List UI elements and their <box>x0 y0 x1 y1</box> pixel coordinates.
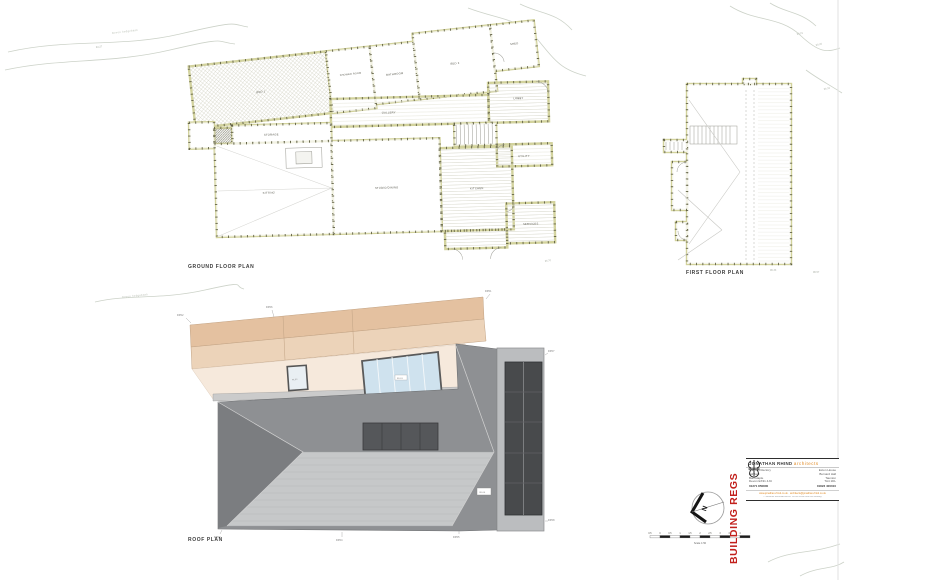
spot-level: 94.27 <box>96 45 103 49</box>
edge-label-dp06: DP06 <box>266 306 273 309</box>
room-label-sitting: SITTING <box>263 190 275 194</box>
scale-tick: 3 <box>719 533 721 535</box>
north-arrow: N <box>692 492 724 524</box>
first-floor-plan-title: FIRST FLOOR PLAN <box>686 270 744 276</box>
room-label-studio-dining: STUDIO/DINING <box>375 185 399 190</box>
spot-level: 96.57 <box>813 271 820 274</box>
ground-floor-plan: BED 1 SHOWER ROOM BATHROOM BED 2 SHED <box>188 20 556 270</box>
edge-label-dp08: DP08 <box>548 519 555 522</box>
edge-label-dp02: DP02 <box>177 314 184 317</box>
rooflight-rl01-label: RL01 <box>397 378 403 380</box>
scale-tick: 2.5 <box>708 533 712 535</box>
room-label-kitchen: KITCHEN <box>470 186 484 190</box>
drawing-sheet: Devon hedgebank Devon hedgebank 94.27 98… <box>0 0 950 580</box>
scale-tick: 0.5 <box>668 533 672 535</box>
phone-number: 01271 850800 <box>749 485 779 489</box>
room-label-storage: STORAGE <box>264 132 279 136</box>
spot-level: 96.33 <box>770 269 777 272</box>
scale-tick: 0.5 <box>648 533 652 535</box>
phone-number: 01823 400010 <box>806 485 836 489</box>
room-label-utility: UTILITY <box>518 154 530 158</box>
ff-floorboards <box>758 88 789 262</box>
scale-caption: Scale 1:50 <box>694 541 707 545</box>
scale-tick: 2 <box>699 533 701 535</box>
edge-label-dp07: DP07 <box>548 350 555 353</box>
copyright-line: © Jonathan Rhind Architects. Do not scal… <box>746 496 839 500</box>
firm-suffix-text: architects <box>794 461 819 466</box>
roof-dark-cluster <box>363 423 438 450</box>
scale-tick: 1 <box>679 533 681 535</box>
roof-plan-title: ROOF PLAN <box>188 537 223 543</box>
room-label-services: SERVICES <box>523 222 539 226</box>
roof-plan: RL03 RL01 RL02 RL04 <box>177 290 555 543</box>
spot-level: 96.32 <box>824 87 831 91</box>
spot-level: 95.70 <box>545 259 552 263</box>
rooflight-rl04-tag: RL04 <box>477 488 491 495</box>
rooflight-rl04-label: RL04 <box>480 492 486 494</box>
rooflight-small: RL03 <box>287 365 308 390</box>
scale-tick: 0 <box>659 533 661 535</box>
hedgebank-label-1: Devon hedgebank <box>112 28 139 35</box>
room-label-lobby: LOBBY <box>513 96 523 100</box>
title-block: JONATHAN RHIND architects The Old Rector… <box>746 458 839 501</box>
scale-tick: 1.5 <box>688 533 692 535</box>
room-label-gallery: GALLERY <box>382 110 396 114</box>
edge-label-dp01: DP01 <box>485 290 492 293</box>
hedgebank-label-2: Devon hedgebank <box>122 292 149 299</box>
edge-label-dp05: DP05 <box>453 536 460 539</box>
ground-floor-plan-title: GROUND FLOOR PLAN <box>188 264 254 270</box>
spot-level: 98.45 <box>816 42 823 47</box>
roof-pv-strip <box>497 348 544 531</box>
first-floor-plan: FIRST FLOOR PLAN <box>664 79 791 276</box>
office-address-right: Exton House Burnard Hall Taunton TA4 1DL… <box>806 469 836 489</box>
firm-logo-icon <box>746 459 762 479</box>
building-regs-stamp: BUILDING REGS <box>728 456 742 564</box>
edge-label-dp04: DP04 <box>336 539 343 542</box>
rooflight-rl03-label: RL03 <box>292 379 298 381</box>
